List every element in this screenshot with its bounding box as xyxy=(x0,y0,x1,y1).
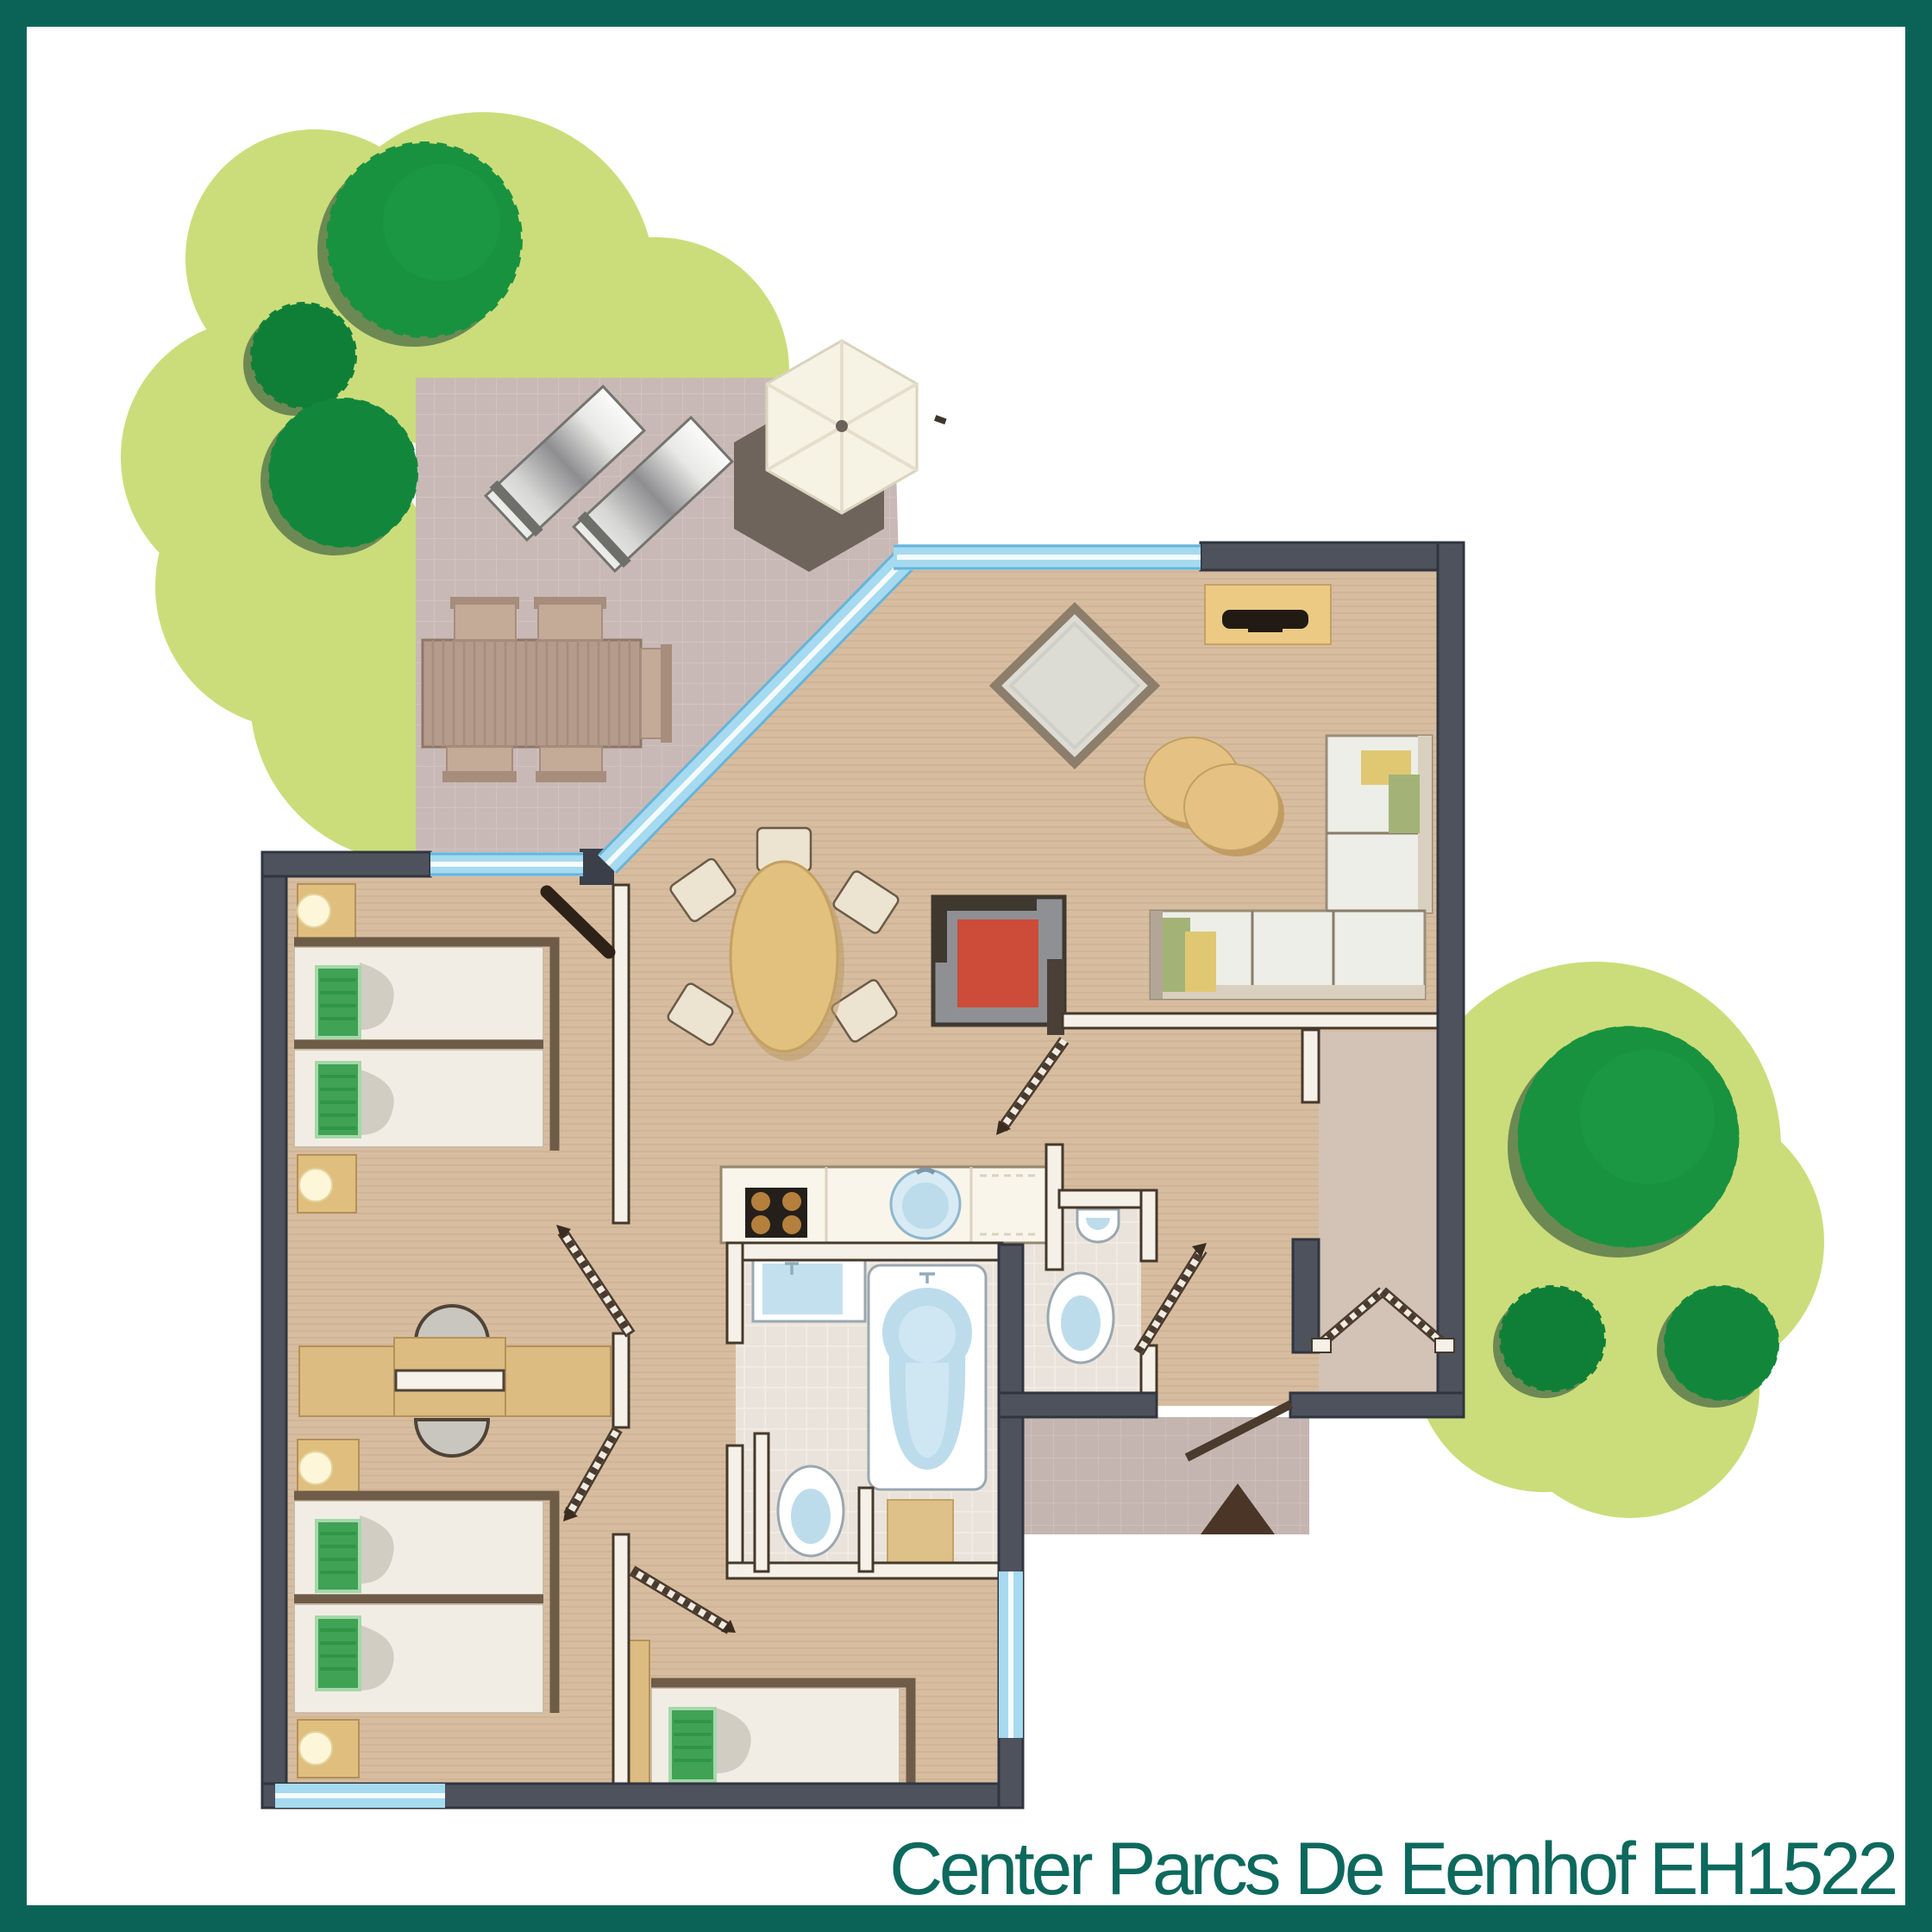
svg-text:Center Parcs De Eemhof EH1522: Center Parcs De Eemhof EH1522 xyxy=(889,1828,1895,1910)
